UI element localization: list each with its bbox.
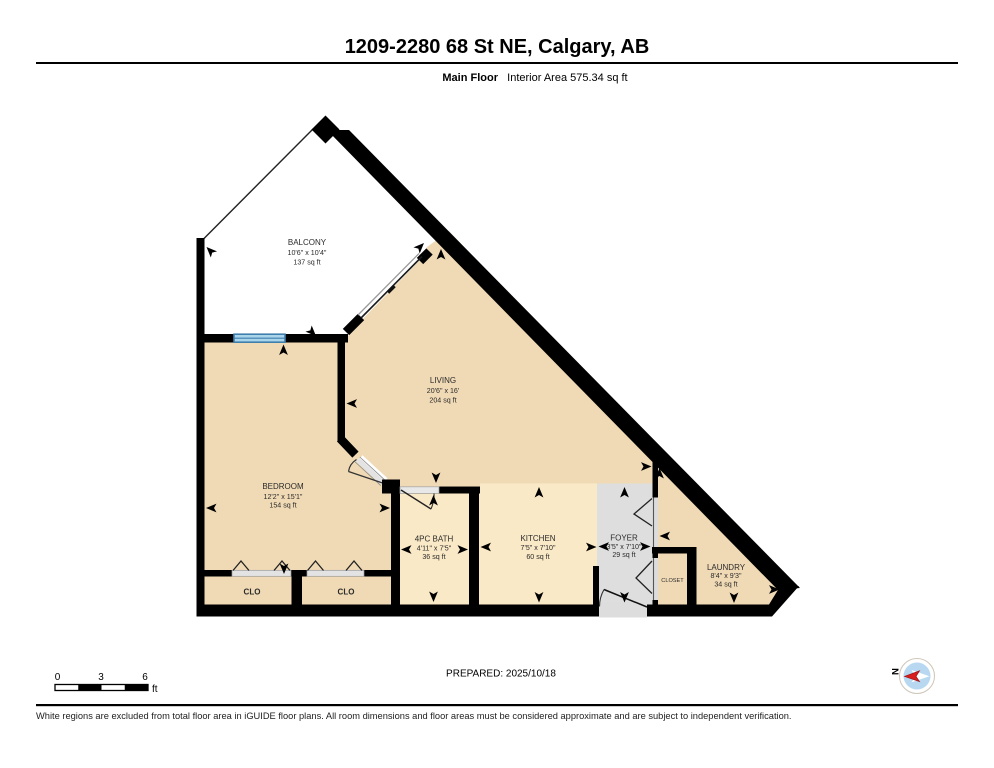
svg-text:ft: ft [152,684,158,695]
svg-text:0: 0 [55,672,61,683]
svg-text:1209-2280 68 St NE, Calgary, A: 1209-2280 68 St NE, Calgary, AB [345,36,650,58]
svg-text:29 sq ft: 29 sq ft [612,551,635,559]
svg-text:BEDROOM: BEDROOM [262,482,304,491]
svg-text:10'6" x 10'4": 10'6" x 10'4" [288,249,327,257]
svg-text:Main Floor Interior Area 575: Main Floor Interior Area 575.34 sq ft [442,72,627,84]
svg-text:KITCHEN: KITCHEN [520,534,555,543]
svg-text:PREPARED: 2025/10/18: PREPARED: 2025/10/18 [446,669,556,680]
svg-text:137 sq ft: 137 sq ft [293,259,320,267]
svg-text:8'4" x 9'3": 8'4" x 9'3" [710,572,741,580]
svg-text:34 sq ft: 34 sq ft [714,581,737,589]
svg-text:LIVING: LIVING [430,376,456,385]
svg-text:LAUNDRY: LAUNDRY [707,563,746,572]
svg-text:154 sq ft: 154 sq ft [269,502,296,510]
svg-text:CLOSET: CLOSET [661,578,684,584]
svg-text:204 sq ft: 204 sq ft [429,397,456,405]
svg-text:3: 3 [98,672,104,683]
svg-text:CLO: CLO [244,588,261,597]
svg-text:36 sq ft: 36 sq ft [422,553,445,561]
svg-text:3'5" x 7'10": 3'5" x 7'10" [607,543,642,551]
svg-text:4'11" x 7'5": 4'11" x 7'5" [417,545,452,553]
svg-text:CLO: CLO [338,588,355,597]
svg-text:60 sq ft: 60 sq ft [526,553,549,561]
svg-text:12'2" x 15'1": 12'2" x 15'1" [264,493,303,501]
svg-text:N: N [889,668,900,675]
svg-text:6: 6 [142,672,148,683]
svg-text:White regions are excluded fro: White regions are excluded from total fl… [36,711,792,721]
svg-text:BALCONY: BALCONY [288,238,327,247]
svg-text:4PC BATH: 4PC BATH [415,535,454,544]
svg-text:7'5" x 7'10": 7'5" x 7'10" [521,544,556,552]
svg-text:FOYER: FOYER [610,534,638,543]
svg-text:20'6" x 16': 20'6" x 16' [427,387,459,395]
